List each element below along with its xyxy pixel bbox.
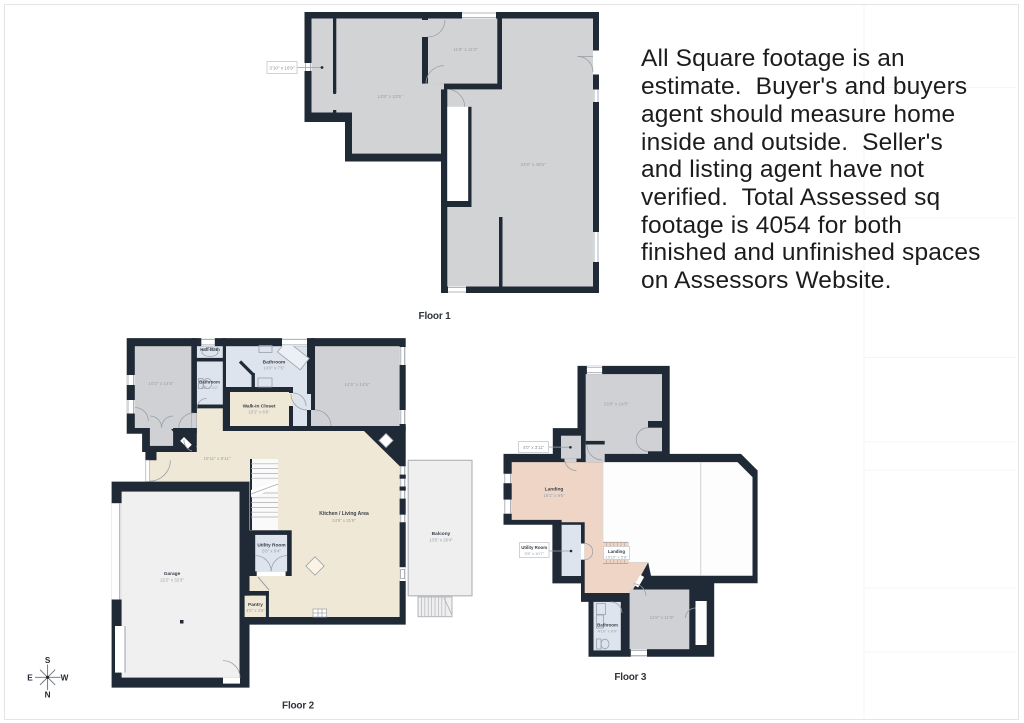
svg-text:5'8" x 6'4": 5'8" x 6'4" [262, 549, 281, 554]
svg-text:10'2" x 14'5": 10'2" x 14'5" [148, 381, 174, 386]
svg-text:24'8" x 45'5": 24'8" x 45'5" [520, 162, 546, 167]
svg-text:Floor 2: Floor 2 [282, 701, 315, 712]
svg-text:24'9" x 31'9": 24'9" x 31'9" [332, 518, 356, 523]
svg-text:S: S [45, 656, 51, 665]
svg-text:10'2" x 6'9": 10'2" x 6'9" [248, 410, 270, 415]
svg-text:22'2" x 32'3": 22'2" x 32'3" [160, 578, 184, 583]
svg-text:Kitchen / Living Area: Kitchen / Living Area [319, 511, 369, 517]
svg-text:13'5" x 26'4": 13'5" x 26'4" [429, 538, 453, 543]
svg-text:E: E [27, 674, 33, 683]
svg-text:11'6" x 11'3": 11'6" x 11'3" [453, 47, 478, 52]
svg-text:3'5" x 10'7": 3'5" x 10'7" [524, 551, 544, 556]
svg-text:Bathroom: Bathroom [597, 623, 618, 628]
svg-text:W: W [61, 674, 69, 683]
svg-text:10'10" x 5'8": 10'10" x 5'8" [606, 555, 629, 560]
svg-text:11'8" x 11'5": 11'8" x 11'5" [650, 615, 675, 620]
svg-text:Landing: Landing [545, 487, 564, 493]
svg-text:4'10" x 8'9": 4'10" x 8'9" [598, 629, 618, 634]
svg-text:4'0" x 3'11": 4'0" x 3'11" [523, 445, 545, 450]
svg-text:Bathroom: Bathroom [199, 380, 220, 385]
svg-text:13'8" x 23'5": 13'8" x 23'5" [377, 94, 403, 99]
svg-text:14'5" x 14'5": 14'5" x 14'5" [344, 382, 370, 387]
svg-text:4'5" x 4'5": 4'5" x 4'5" [246, 608, 265, 613]
svg-text:N: N [45, 691, 51, 700]
svg-text:Balcony: Balcony [432, 531, 451, 537]
svg-text:13'8" x 14'5": 13'8" x 14'5" [604, 401, 630, 406]
svg-text:Landing: Landing [608, 549, 625, 554]
svg-text:5'6" x 4'2": 5'6" x 4'2" [201, 385, 219, 390]
svg-text:Floor 3: Floor 3 [614, 672, 647, 683]
svg-text:Half-Bath: Half-Bath [200, 347, 220, 352]
svg-text:Utility Room: Utility Room [521, 545, 547, 550]
svg-text:3'10" x 16'9": 3'10" x 16'9" [269, 66, 295, 71]
svg-text:15'11" x 8'11": 15'11" x 8'11" [203, 456, 230, 461]
svg-text:14'0" x 7'5": 14'0" x 7'5" [263, 366, 285, 371]
svg-text:Floor 1: Floor 1 [419, 311, 452, 322]
svg-text:16'1" x 9'5": 16'1" x 9'5" [543, 493, 565, 498]
svg-text:Garage: Garage [164, 571, 181, 577]
